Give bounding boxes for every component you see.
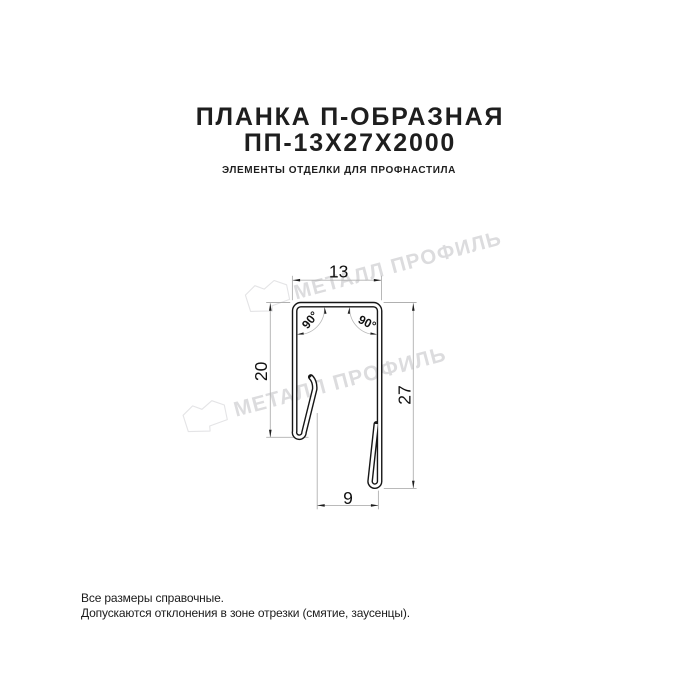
svg-text:9: 9 xyxy=(343,488,353,508)
svg-text:90°: 90° xyxy=(356,312,379,333)
svg-text:МЕТАЛЛ ПРОФИЛЬ: МЕТАЛЛ ПРОФИЛЬ xyxy=(291,227,504,305)
svg-text:20: 20 xyxy=(251,361,271,381)
svg-text:13: 13 xyxy=(329,261,348,281)
svg-text:90°: 90° xyxy=(299,308,321,331)
svg-text:27: 27 xyxy=(395,385,415,404)
svg-text:МЕТАЛЛ ПРОФИЛЬ: МЕТАЛЛ ПРОФИЛЬ xyxy=(231,343,449,422)
